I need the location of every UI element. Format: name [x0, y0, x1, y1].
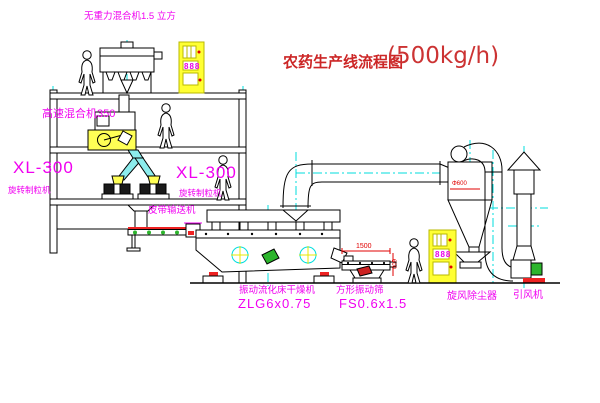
diagram-title: 农药生产线流程图 [283, 51, 403, 72]
label-sieve-name: 方形振动筛 [336, 286, 384, 296]
label-gravity-free-mixer: 无重力混合机1.5 立方 [84, 12, 176, 22]
exhaust-stack [508, 152, 540, 260]
label-belt-conveyor: 皮带输送机 [148, 206, 196, 216]
worker-figure-top-floor [79, 51, 95, 95]
dim-sieve-width: 600 [390, 259, 396, 269]
granulator-right-machine [138, 176, 169, 199]
label-cyclone: 旋风除尘器 [447, 292, 497, 302]
cabinet-lower-display: 888 [435, 251, 451, 259]
dim-cyclone-diameter: Φ600 [452, 181, 467, 187]
granulator-left-machine [102, 176, 133, 199]
worker-figure-second-floor [158, 104, 174, 148]
flow-diagram-page: 农药生产线流程图 (500kg/h) 无重力混合机1.5 立方 高速混合机350… [0, 0, 600, 403]
label-dryer-model: ZLG6x0.75 [238, 297, 311, 310]
diagram-capacity: (500kg/h) [387, 43, 499, 69]
exhaust-duct [280, 160, 452, 208]
label-fan: 引风机 [513, 291, 543, 301]
label-granulator-right-model: XL-300 [176, 164, 237, 181]
label-sieve-model: FS0.6x1.5 [339, 297, 407, 310]
fluid-bed-dryer-machine [196, 210, 347, 283]
label-dryer-name: 振动流化床干燥机 [239, 286, 315, 296]
belt-conveyor-machine [127, 223, 202, 251]
worker-figure-ground [406, 239, 422, 283]
cabinet-upper-display: 888 [184, 63, 200, 71]
label-granulator-right-name: 旋转制粒机 [179, 189, 222, 198]
label-granulator-left-model: XL-300 [13, 159, 74, 176]
label-high-speed-mixer: 高速混合机350 [42, 109, 115, 120]
vibrating-sieve-machine [342, 248, 396, 283]
induced-draft-fan-machine [511, 260, 545, 283]
high-speed-mixer [88, 95, 136, 150]
label-granulator-left-name: 旋转制粒机 [8, 186, 51, 195]
dim-sieve-length: 1500 [356, 243, 372, 250]
gravity-free-mixer [100, 42, 162, 93]
